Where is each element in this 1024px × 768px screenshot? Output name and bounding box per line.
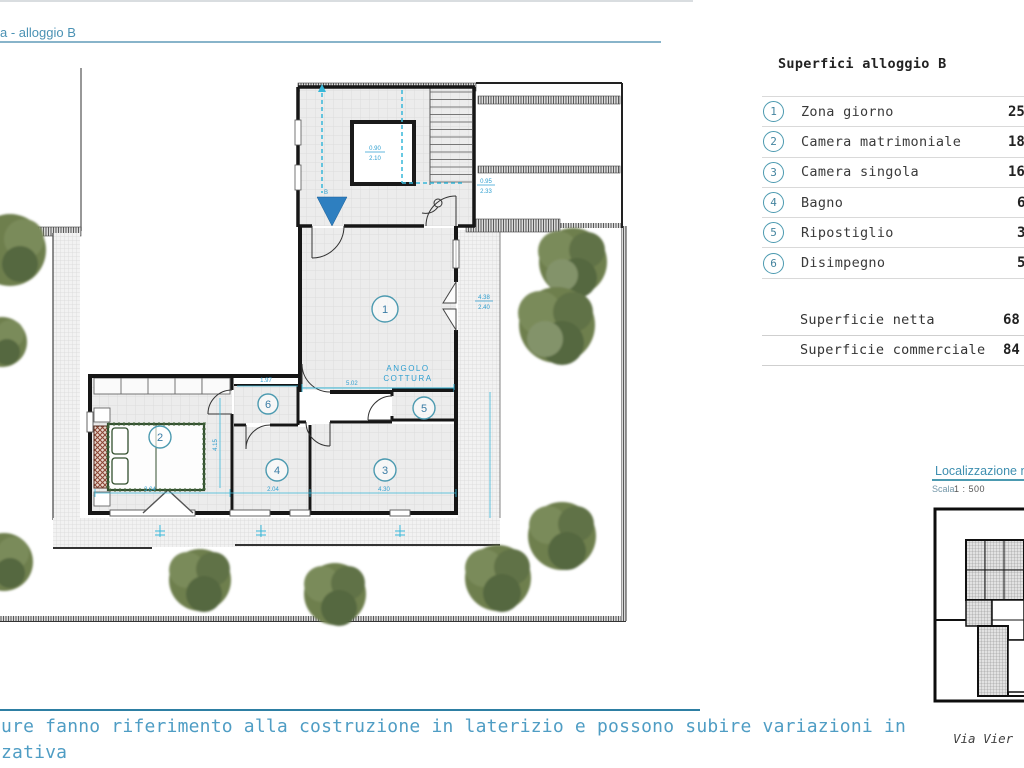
total-label: Superficie commerciale xyxy=(800,342,985,358)
total-value: 68 xyxy=(1003,312,1020,328)
footer-divider xyxy=(0,709,700,711)
disclaimer-line1: ure fanno riferimento alla costruzione i… xyxy=(1,716,906,737)
wardrobe xyxy=(94,378,230,394)
row-label: Zona giorno xyxy=(801,104,894,120)
svg-text:4.15: 4.15 xyxy=(213,439,219,451)
table-row: 2 Camera matrimoniale 18 xyxy=(762,127,1024,157)
svg-text:COTTURA: COTTURA xyxy=(383,374,432,383)
title-underline xyxy=(0,41,661,43)
row-number-badge: 2 xyxy=(763,131,784,152)
table-row: 3 Camera singola 16 xyxy=(762,158,1024,188)
total-row: Superficie commerciale 84 xyxy=(762,336,1024,366)
table-row: 6 Disimpegno 5 xyxy=(762,248,1024,278)
row-value: 3 xyxy=(1017,225,1024,241)
surfaces-table: 1 Zona giorno 25 2 Camera matrimoniale 1… xyxy=(762,96,1024,279)
row-value: 6 xyxy=(1017,195,1024,211)
svg-text:6: 6 xyxy=(265,399,271,411)
svg-text:3.04: 3.04 xyxy=(144,487,156,493)
localization-underline xyxy=(932,479,1024,481)
scale-label: Scala xyxy=(932,484,955,494)
tree xyxy=(518,287,595,365)
top-border-line xyxy=(0,0,693,2)
tree xyxy=(0,317,27,367)
table-row: 1 Zona giorno 25 xyxy=(762,97,1024,127)
svg-text:4.38: 4.38 xyxy=(478,295,490,301)
tree xyxy=(538,228,607,298)
disclaimer-line2: zativa xyxy=(1,742,67,763)
svg-text:2: 2 xyxy=(157,432,163,444)
elevator: 0.90 2.10 xyxy=(352,122,414,184)
floor-plan-page: { "page": { "title": "a - alloggio B" },… xyxy=(0,0,1024,768)
site-minimap xyxy=(933,506,1024,704)
table-row: 4 Bagno 6 xyxy=(762,188,1024,218)
lower-wing: 2 3 4 5 6 xyxy=(87,376,458,516)
svg-text:5: 5 xyxy=(421,403,427,415)
row-value: 5 xyxy=(1017,255,1024,271)
totals-section: Superficie netta 68 Superficie commercia… xyxy=(762,306,1024,366)
tree xyxy=(0,533,33,591)
table-row: 5 Ripostiglio 3 xyxy=(762,218,1024,248)
row-label: Ripostiglio xyxy=(801,225,894,241)
svg-text:0.90: 0.90 xyxy=(369,146,381,152)
svg-text:2.04: 2.04 xyxy=(267,487,279,493)
tree xyxy=(169,549,231,612)
nightstand xyxy=(94,408,110,422)
surfaces-panel: Superfici alloggio B 1 Zona giorno 25 2 … xyxy=(762,56,1024,366)
room-zona-giorno: 1 ANGOLO COTTURA 5.02 xyxy=(300,226,459,392)
row-number-badge: 5 xyxy=(763,222,784,243)
svg-text:2.33: 2.33 xyxy=(480,189,492,195)
svg-text:5.02: 5.02 xyxy=(346,381,358,387)
tree xyxy=(528,502,596,570)
row-number-badge: 3 xyxy=(763,162,784,183)
row-label: Disimpegno xyxy=(801,255,885,271)
row-number-badge: 1 xyxy=(763,101,784,122)
svg-text:2.40: 2.40 xyxy=(478,305,490,311)
row-label: Bagno xyxy=(801,195,843,211)
row-number-badge: 6 xyxy=(763,253,784,274)
stairwell-window xyxy=(295,165,301,190)
page-title: a - alloggio B xyxy=(0,25,76,40)
nightstand xyxy=(94,492,110,506)
row-value: 16 xyxy=(1008,164,1024,180)
tree xyxy=(0,214,46,286)
tree xyxy=(465,545,531,612)
row-label: Camera matrimoniale xyxy=(801,134,961,150)
angolo-cottura-label: ANGOLO xyxy=(386,364,429,373)
stairwell: 0.90 2.10 B xyxy=(295,84,475,227)
total-value: 84 xyxy=(1003,342,1020,358)
address-text: Via Vier xyxy=(953,731,1013,746)
svg-text:0.95: 0.95 xyxy=(480,179,492,185)
room-number: 1 xyxy=(382,304,388,316)
row-value: 25 xyxy=(1008,104,1024,120)
row-value: 18 xyxy=(1008,134,1024,150)
row-label: Camera singola xyxy=(801,164,919,180)
panel-title: Superfici alloggio B xyxy=(778,56,1024,72)
svg-text:3: 3 xyxy=(382,465,388,477)
svg-text:4: 4 xyxy=(274,465,280,477)
svg-text:2.10: 2.10 xyxy=(369,156,381,162)
localization-title: Localizzazione n xyxy=(935,464,1024,478)
svg-text:4.30: 4.30 xyxy=(378,487,390,493)
row-number-badge: 4 xyxy=(763,192,784,213)
stairwell-window xyxy=(295,120,301,145)
entrance-label: B xyxy=(324,190,328,196)
total-row: Superficie netta 68 xyxy=(762,306,1024,336)
scale-value: 1 : 500 xyxy=(954,484,985,494)
svg-text:1.97: 1.97 xyxy=(260,378,272,384)
adjacent-unit-walls xyxy=(476,83,622,228)
total-label: Superficie netta xyxy=(800,312,935,328)
